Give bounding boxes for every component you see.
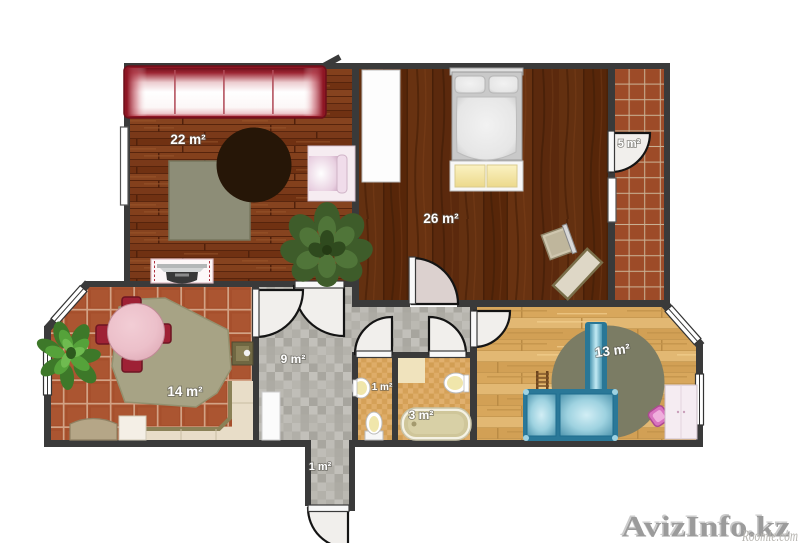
svg-text:26 m²: 26 m² [423, 211, 459, 226]
svg-text:1 m²: 1 m² [309, 461, 332, 473]
svg-text:1 m²: 1 m² [372, 382, 393, 393]
svg-text:Roomle.com: Roomle.com [741, 528, 798, 543]
svg-text:9 m²: 9 m² [281, 352, 306, 366]
svg-text:22 m²: 22 m² [170, 132, 206, 147]
svg-text:3 m²: 3 m² [409, 408, 434, 422]
svg-text:14 m²: 14 m² [167, 384, 203, 399]
svg-text:5 m²: 5 m² [618, 138, 641, 150]
